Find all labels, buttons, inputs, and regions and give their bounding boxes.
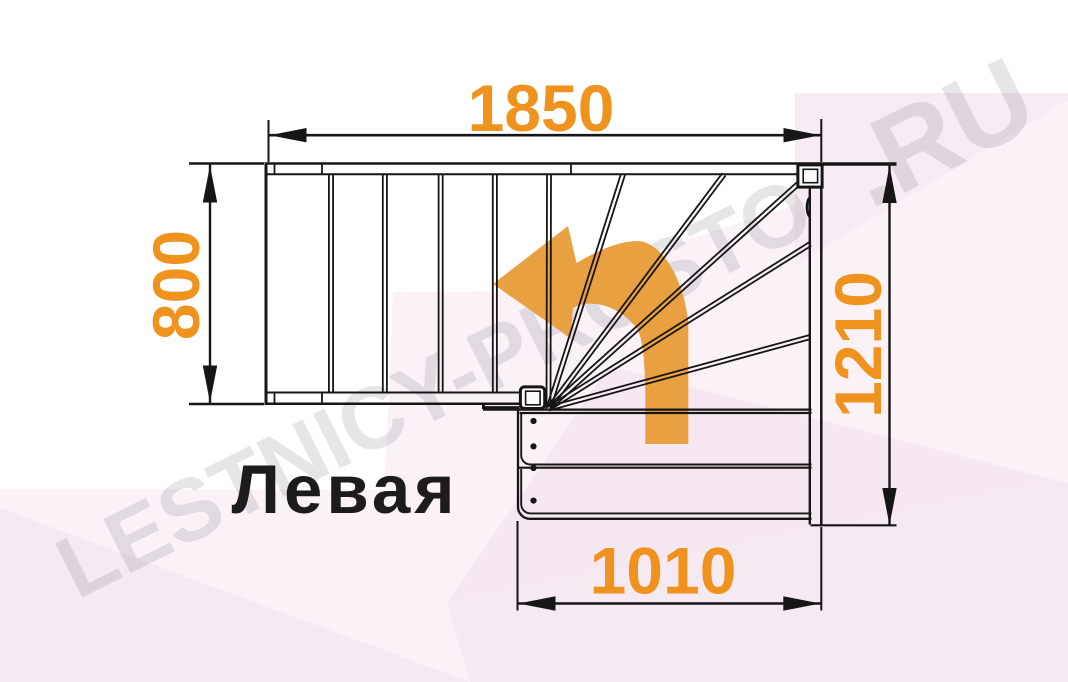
svg-text:1850: 1850 (468, 71, 615, 145)
svg-text:1210: 1210 (821, 271, 895, 418)
svg-text:800: 800 (139, 230, 213, 340)
svg-text:1010: 1010 (590, 534, 737, 608)
svg-text:Левая: Левая (232, 451, 459, 528)
